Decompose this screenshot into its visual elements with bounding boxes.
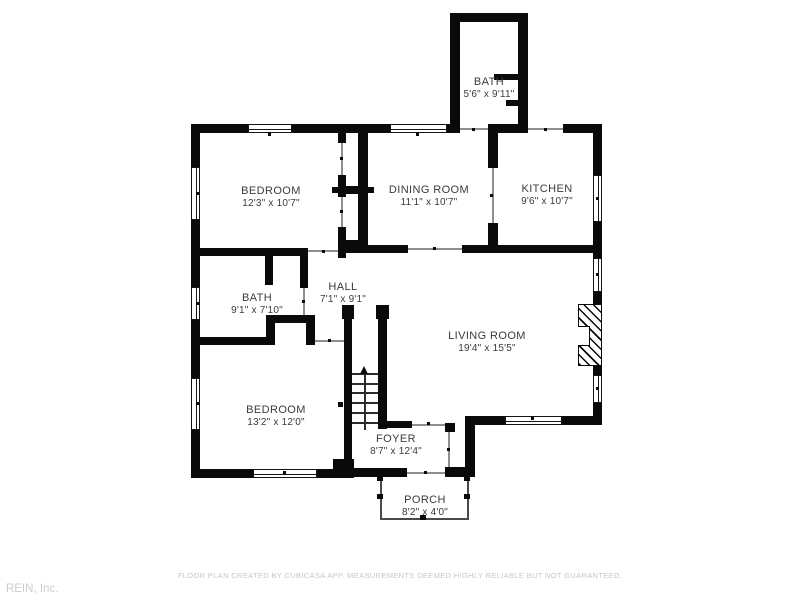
room-name: LIVING ROOM bbox=[448, 330, 526, 343]
floor-plan: BATH 5'6" x 9'11" BEDROOM 12'3" x 10'7" … bbox=[0, 0, 800, 600]
porch-post bbox=[377, 494, 383, 499]
wall bbox=[338, 186, 368, 194]
wall bbox=[378, 318, 387, 429]
door-marker bbox=[544, 128, 547, 131]
room-dimensions: 5'6" x 9'11" bbox=[464, 89, 515, 101]
wall bbox=[292, 124, 390, 133]
door-marker bbox=[328, 339, 331, 342]
wall bbox=[376, 305, 389, 319]
wall bbox=[445, 467, 475, 477]
wall bbox=[344, 318, 352, 469]
room-label-bath-main: BATH 9'1" x 7'10" bbox=[231, 292, 283, 317]
wall-tick bbox=[338, 402, 343, 407]
wall bbox=[342, 305, 354, 319]
wall bbox=[488, 223, 498, 253]
window-marker bbox=[196, 302, 199, 305]
wall bbox=[191, 133, 200, 167]
room-dimensions: 19'4" x 15'5" bbox=[448, 343, 526, 355]
porch-edge bbox=[380, 478, 382, 520]
room-label-living-room: LIVING ROOM 19'4" x 15'5" bbox=[448, 330, 526, 355]
door-marker bbox=[427, 422, 430, 425]
door-marker bbox=[490, 194, 493, 197]
wall bbox=[450, 13, 528, 22]
wall bbox=[462, 245, 593, 253]
window-marker bbox=[283, 471, 286, 474]
wall bbox=[191, 337, 266, 345]
room-label-hall: HALL 7'1" x 9'1" bbox=[320, 281, 366, 306]
wall-tick bbox=[332, 187, 338, 193]
room-name: PORCH bbox=[402, 494, 448, 507]
door-marker bbox=[340, 210, 343, 213]
room-dimensions: 11'1" x 10'7" bbox=[389, 197, 469, 209]
porch-edge bbox=[467, 478, 469, 520]
door-marker bbox=[424, 471, 427, 474]
wall bbox=[563, 124, 602, 133]
wall bbox=[445, 423, 455, 432]
porch-post bbox=[464, 494, 470, 499]
window-marker bbox=[596, 273, 599, 276]
door-marker bbox=[447, 448, 450, 451]
fireplace-firebox bbox=[578, 326, 590, 346]
wall bbox=[358, 245, 408, 253]
room-name: BEDROOM bbox=[246, 404, 306, 417]
window bbox=[390, 124, 447, 133]
wall bbox=[593, 133, 602, 175]
window-marker bbox=[416, 133, 419, 136]
room-name: BATH bbox=[231, 292, 283, 305]
wall bbox=[447, 124, 460, 133]
room-name: HALL bbox=[320, 281, 366, 294]
window-marker bbox=[596, 197, 599, 200]
stair-center-line bbox=[364, 373, 366, 430]
room-label-bedroom-lower: BEDROOM 13'2" x 12'0" bbox=[246, 404, 306, 429]
room-name: DINING ROOM bbox=[389, 184, 469, 197]
wall bbox=[338, 227, 346, 258]
wall bbox=[191, 248, 308, 256]
wall bbox=[562, 416, 602, 425]
window bbox=[248, 124, 292, 133]
room-label-kitchen: KITCHEN 9'6" x 10'7" bbox=[521, 183, 573, 208]
room-dimensions: 8'7" x 12'4" bbox=[370, 446, 422, 458]
room-dimensions: 7'1" x 9'1" bbox=[320, 294, 366, 306]
porch-post bbox=[377, 476, 383, 481]
wall bbox=[488, 133, 498, 168]
room-label-bath-upper: BATH 5'6" x 9'11" bbox=[464, 76, 515, 101]
door-marker bbox=[340, 157, 343, 160]
wall bbox=[191, 469, 253, 478]
wall bbox=[266, 323, 275, 345]
wall bbox=[191, 124, 248, 133]
room-dimensions: 8'2" x 4'0" bbox=[402, 507, 448, 519]
room-name: BATH bbox=[464, 76, 515, 89]
door-marker bbox=[302, 300, 305, 303]
wall bbox=[518, 13, 528, 132]
room-label-dining-room: DINING ROOM 11'1" x 10'7" bbox=[389, 184, 469, 209]
wall bbox=[300, 248, 308, 288]
window-marker bbox=[196, 192, 199, 195]
room-name: FOYER bbox=[370, 433, 422, 446]
window-marker bbox=[531, 417, 534, 420]
room-dimensions: 9'1" x 7'10" bbox=[231, 305, 283, 317]
room-name: KITCHEN bbox=[521, 183, 573, 196]
room-dimensions: 13'2" x 12'0" bbox=[246, 417, 306, 429]
wall bbox=[488, 124, 528, 133]
door-marker bbox=[433, 247, 436, 250]
door-marker bbox=[322, 250, 325, 253]
window-marker bbox=[596, 387, 599, 390]
wall bbox=[191, 320, 200, 378]
attribution-text: REIN, Inc. bbox=[6, 583, 58, 595]
wall bbox=[338, 133, 346, 143]
door-marker bbox=[472, 128, 475, 131]
stair-direction-arrow bbox=[360, 366, 368, 374]
room-label-bedroom-upper: BEDROOM 12'3" x 10'7" bbox=[241, 185, 301, 210]
wall bbox=[593, 365, 602, 375]
wall bbox=[383, 421, 412, 428]
window-marker bbox=[196, 402, 199, 405]
disclaimer-text: FLOOR PLAN CREATED BY CUBICASA APP. MEAS… bbox=[178, 571, 622, 580]
wall bbox=[593, 222, 602, 258]
room-label-foyer: FOYER 8'7" x 12'4" bbox=[370, 433, 422, 458]
window-marker bbox=[268, 133, 271, 136]
room-name: BEDROOM bbox=[241, 185, 301, 198]
room-dimensions: 12'3" x 10'7" bbox=[241, 198, 301, 210]
room-dimensions: 9'6" x 10'7" bbox=[521, 196, 573, 208]
porch-post bbox=[464, 476, 470, 481]
room-label-porch: PORCH 8'2" x 4'0" bbox=[402, 494, 448, 519]
wall-tick bbox=[368, 187, 374, 193]
wall bbox=[450, 13, 460, 132]
wall bbox=[306, 323, 315, 345]
wall bbox=[265, 256, 273, 285]
